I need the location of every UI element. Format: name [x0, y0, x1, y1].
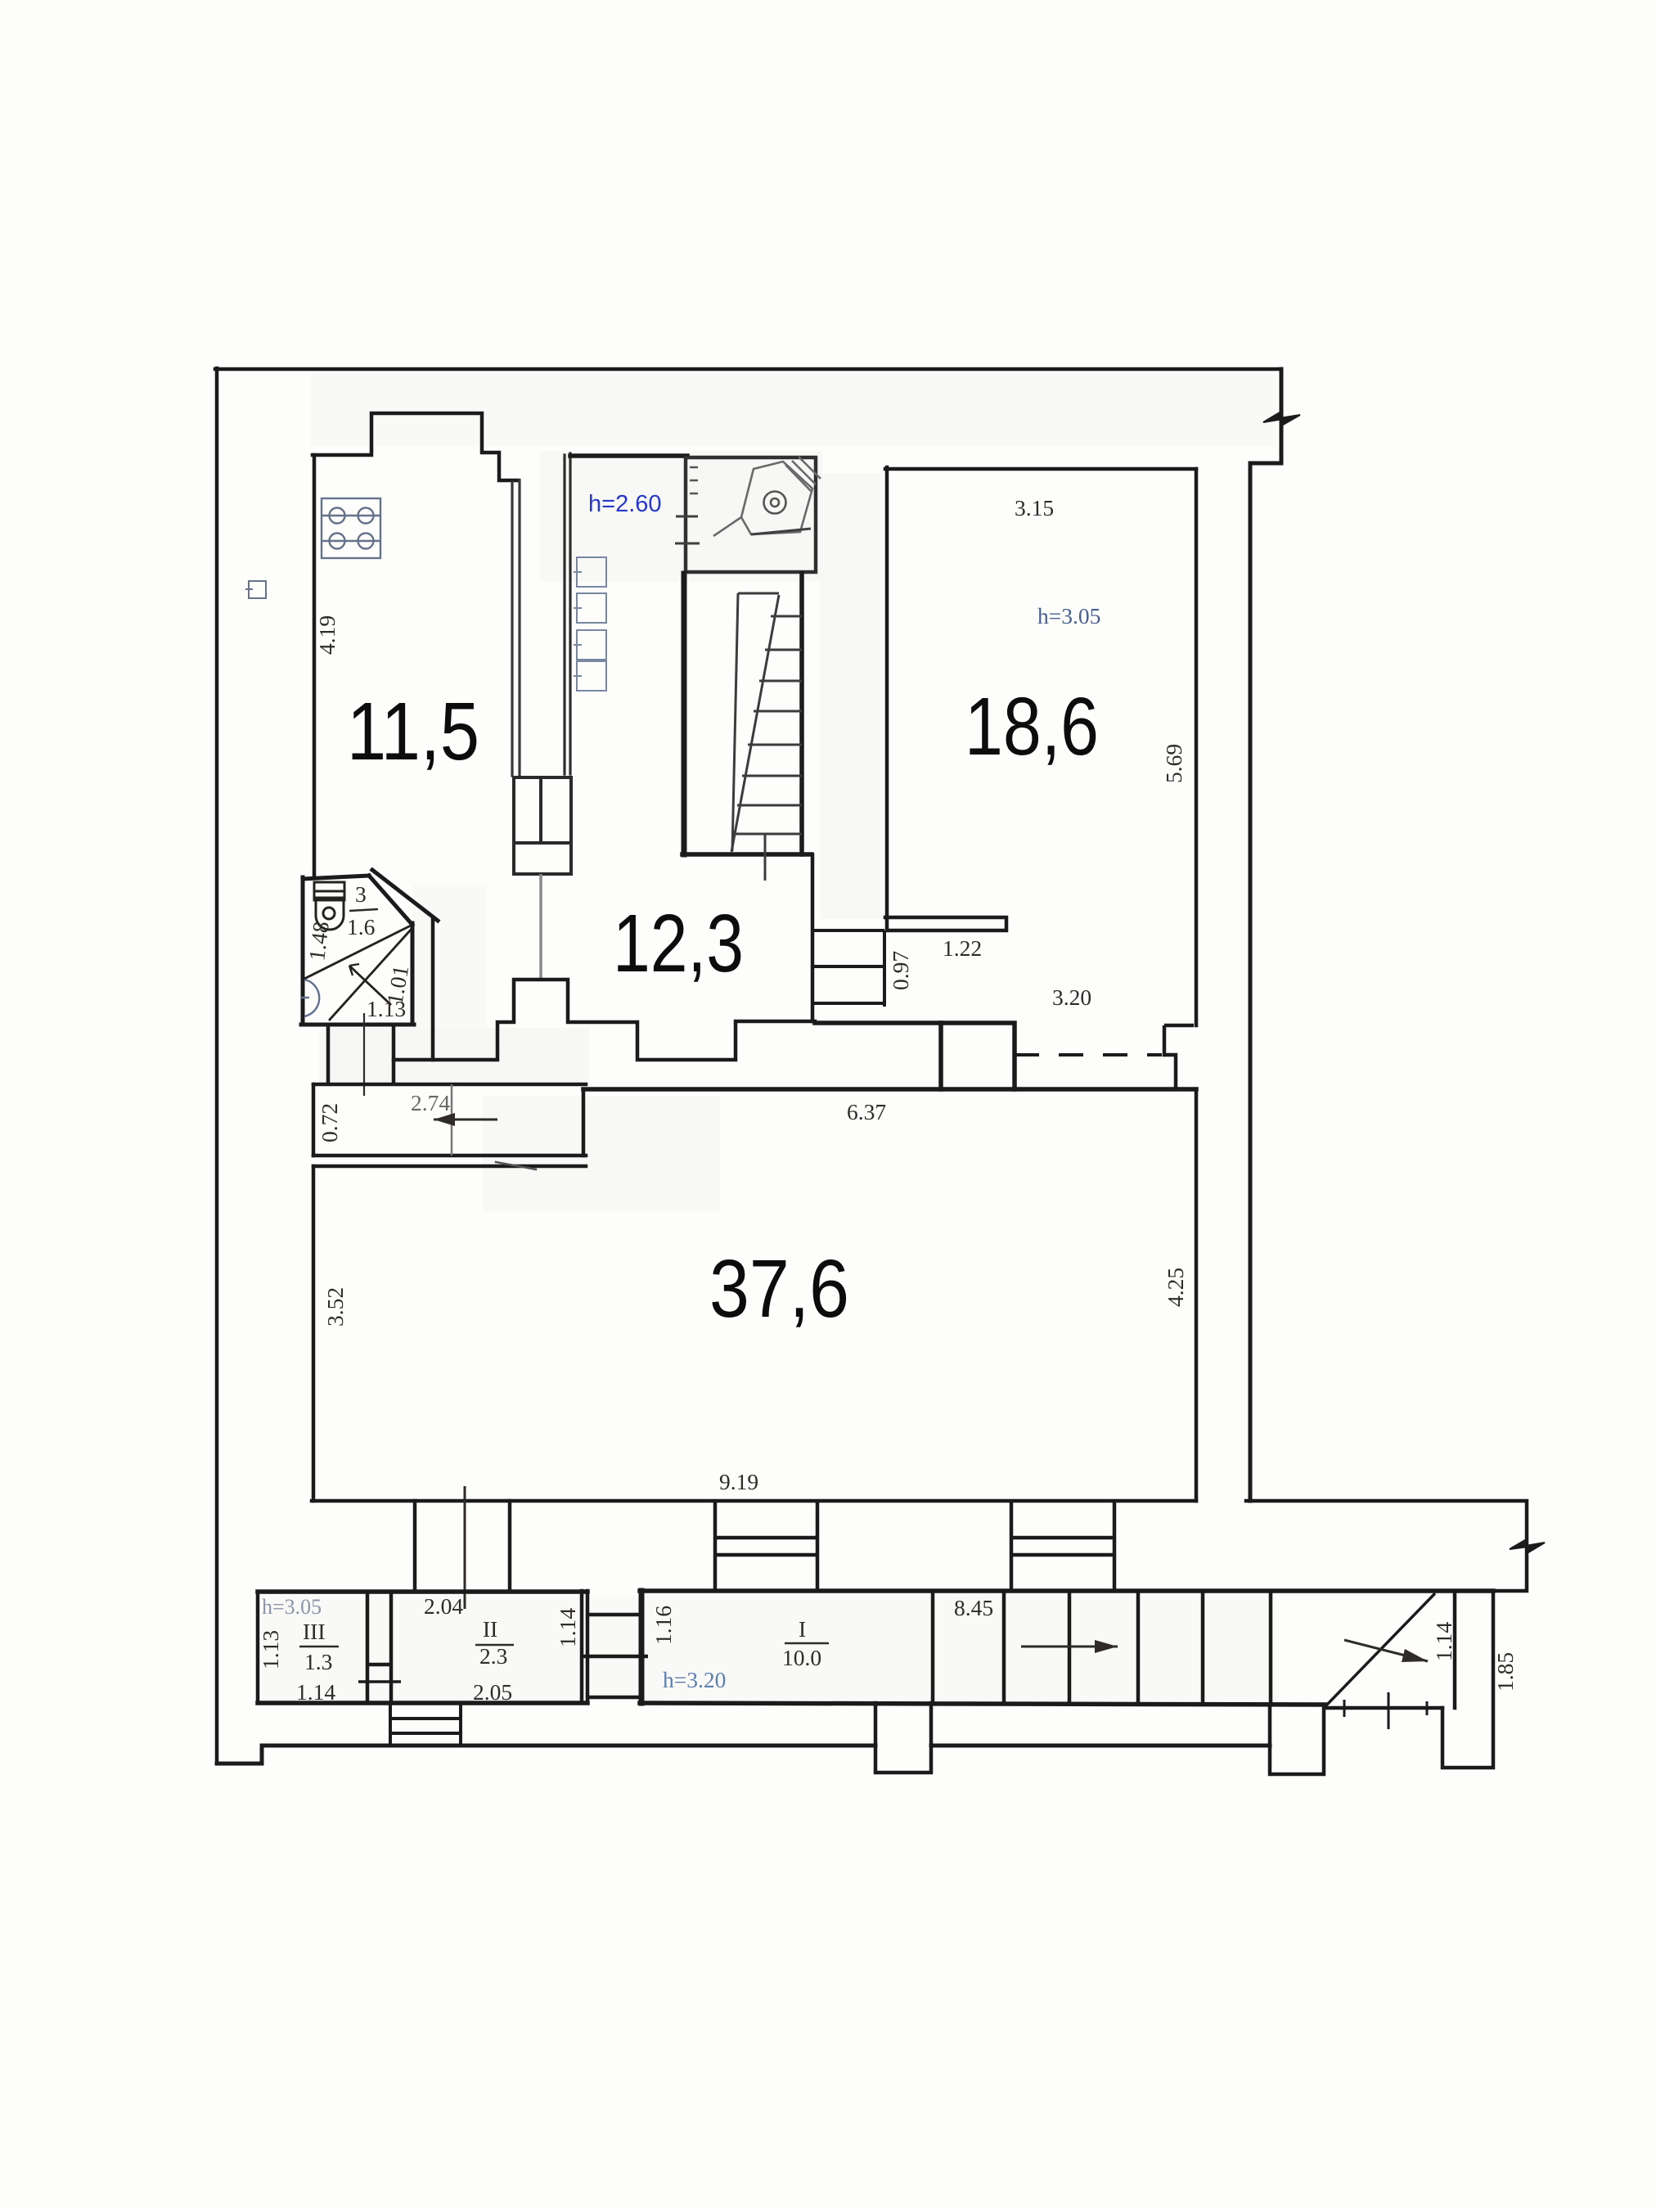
svg-text:2.05: 2.05 [473, 1679, 512, 1705]
svg-text:3: 3 [355, 881, 367, 907]
svg-text:2.04: 2.04 [424, 1593, 463, 1619]
svg-text:5.69: 5.69 [1161, 744, 1186, 783]
svg-text:2.74: 2.74 [411, 1090, 450, 1115]
svg-text:h=2.60: h=2.60 [588, 491, 662, 517]
svg-text:1.13: 1.13 [367, 996, 406, 1021]
svg-text:6.37: 6.37 [847, 1099, 886, 1124]
svg-text:3.15: 3.15 [1015, 495, 1054, 520]
svg-text:0.97: 0.97 [888, 951, 913, 990]
svg-text:11,5: 11,5 [347, 686, 479, 777]
svg-text:1.16: 1.16 [650, 1606, 676, 1645]
svg-text:h=3.20: h=3.20 [663, 1667, 726, 1692]
svg-text:18,6: 18,6 [965, 681, 1099, 773]
svg-text:1.13: 1.13 [258, 1630, 283, 1669]
svg-text:1.22: 1.22 [943, 935, 982, 961]
svg-text:1.6: 1.6 [347, 914, 375, 939]
svg-text:4.25: 4.25 [1163, 1268, 1188, 1307]
svg-text:1.3: 1.3 [304, 1649, 332, 1674]
svg-text:3.52: 3.52 [322, 1287, 348, 1327]
svg-text:10.0: 10.0 [782, 1645, 821, 1670]
svg-text:8.45: 8.45 [954, 1595, 993, 1620]
svg-text:h=3.05: h=3.05 [262, 1595, 322, 1619]
svg-text:9.19: 9.19 [719, 1469, 758, 1494]
svg-text:III: III [303, 1619, 325, 1644]
svg-text:1.14: 1.14 [296, 1679, 335, 1705]
svg-text:h=3.05: h=3.05 [1037, 603, 1100, 628]
svg-text:37,6: 37,6 [709, 1243, 849, 1335]
svg-text:1.14: 1.14 [555, 1608, 580, 1647]
svg-text:1.48: 1.48 [304, 920, 334, 962]
svg-text:I: I [799, 1616, 806, 1642]
svg-text:1.14: 1.14 [1431, 1622, 1456, 1661]
svg-text:1.85: 1.85 [1492, 1652, 1518, 1692]
svg-text:3.20: 3.20 [1052, 984, 1091, 1010]
svg-text:II: II [483, 1616, 497, 1642]
svg-text:0.72: 0.72 [317, 1103, 342, 1142]
svg-text:2.3: 2.3 [479, 1643, 507, 1669]
svg-text:4.19: 4.19 [314, 615, 340, 655]
svg-text:12,3: 12,3 [613, 898, 744, 989]
